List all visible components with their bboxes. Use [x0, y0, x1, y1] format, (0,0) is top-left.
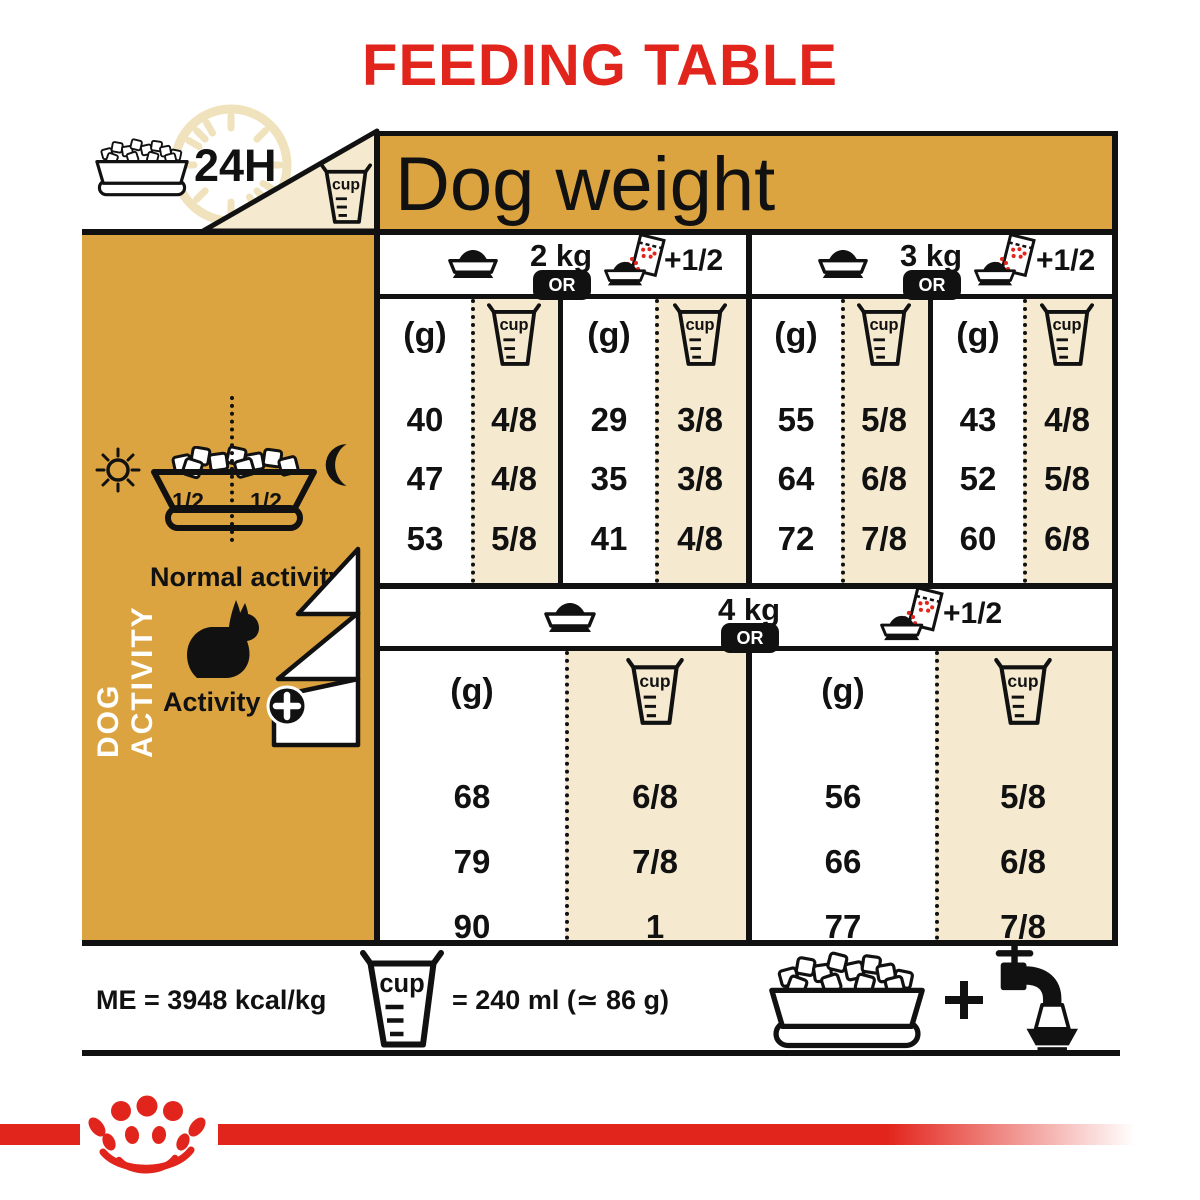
feed-amount: 1 [605, 908, 705, 946]
sun-icon [92, 444, 144, 496]
plus-icon [941, 977, 987, 1023]
cup-icon: cup [994, 658, 1052, 728]
grams-header: (g) [746, 316, 846, 355]
feed-amount: 79 [422, 843, 522, 881]
feed-amount: 5/8 [834, 401, 934, 439]
plus-circle-icon [264, 683, 310, 729]
feed-amount: 90 [422, 908, 522, 946]
mixed-feeding-icon [602, 233, 668, 289]
grams-header: (g) [422, 672, 522, 711]
moon-icon [320, 442, 358, 488]
feed-amount: 4/8 [464, 460, 564, 498]
feeding-table-page: FEEDING TABLE 24H cup Dog weight [0, 0, 1200, 1200]
feed-amount: 40 [375, 401, 475, 439]
feed-amount: 3/8 [650, 401, 750, 439]
feed-amount: 6/8 [605, 778, 705, 816]
feed-amount: 55 [746, 401, 846, 439]
dry-bowl-icon [446, 249, 500, 280]
or-badge: OR [533, 270, 591, 300]
feed-amount: 66 [793, 843, 893, 881]
dry-bowl-icon [542, 602, 598, 634]
feed-amount: 35 [559, 460, 659, 498]
svg-text:cup: cup [1052, 316, 1081, 334]
cup-icon: cup [626, 658, 684, 728]
feed-amount: 64 [746, 460, 846, 498]
feed-amount: 56 [793, 778, 893, 816]
svg-text:cup: cup [685, 316, 714, 334]
dog-weight-title: Dog weight [395, 138, 775, 230]
table-line [82, 940, 1118, 946]
kibble-bowl-icon [88, 136, 196, 200]
table-line [746, 651, 752, 940]
half-label: 1/2 [236, 488, 296, 515]
half-split-line [230, 396, 234, 542]
page-title: FEEDING TABLE [0, 32, 1200, 99]
svg-text:cup: cup [379, 970, 424, 998]
table-line [82, 229, 1118, 235]
svg-text:cup: cup [1007, 671, 1038, 691]
cup-label: cup [332, 176, 360, 193]
feed-amount: 52 [928, 460, 1028, 498]
feed-amount: 41 [559, 520, 659, 558]
feed-amount: 60 [928, 520, 1028, 558]
table-line [82, 1050, 1120, 1056]
cup-equivalence-label: = 240 ml (≃ 86 g) [452, 985, 669, 1016]
svg-text:cup: cup [869, 316, 898, 334]
feed-amount: 7/8 [834, 520, 934, 558]
table-line [377, 131, 1118, 136]
plus-half-label: +1/2 [1036, 244, 1095, 278]
feed-amount: 4/8 [650, 520, 750, 558]
cup-icon: cup [360, 950, 444, 1052]
feed-amount: 77 [793, 908, 893, 946]
table-line [377, 583, 1118, 589]
grams-header: (g) [928, 316, 1028, 355]
cup-icon: cup [487, 303, 541, 369]
mixed-feeding-icon [878, 586, 946, 644]
plus-half-label: +1/2 [664, 244, 723, 278]
feed-amount: 5/8 [973, 778, 1073, 816]
crown-paw-logo [87, 1094, 207, 1194]
grams-header: (g) [375, 316, 475, 355]
brand-stripe [0, 1124, 80, 1145]
feed-amount: 4/8 [464, 401, 564, 439]
feed-amount: 7/8 [605, 843, 705, 881]
feed-amount: 29 [559, 401, 659, 439]
brand-stripe [218, 1124, 1135, 1145]
feed-amount: 6/8 [973, 843, 1073, 881]
activity-label: Activity [163, 687, 261, 718]
feed-amount: 6/8 [834, 460, 934, 498]
feed-amount: 68 [422, 778, 522, 816]
weight-label-3kg: 3 kg [881, 238, 981, 274]
grams-header: (g) [793, 672, 893, 711]
grams-header: (g) [559, 316, 659, 355]
feed-amount: 7/8 [973, 908, 1073, 946]
cup-icon: cup [320, 163, 372, 227]
cup-icon: cup [857, 303, 911, 369]
or-badge: OR [903, 270, 961, 300]
cup-icon: cup [673, 303, 727, 369]
or-badge: OR [721, 623, 779, 653]
plus-half-label: +1/2 [943, 597, 1002, 631]
svg-text:cup: cup [639, 671, 670, 691]
svg-text:cup: cup [499, 316, 528, 334]
feed-amount: 47 [375, 460, 475, 498]
kibble-bowl-icon [757, 948, 937, 1054]
feed-amount: 4/8 [1017, 401, 1117, 439]
feed-amount: 5/8 [1017, 460, 1117, 498]
feed-amount: 6/8 [1017, 520, 1117, 558]
feed-amount: 72 [746, 520, 846, 558]
water-tap-icon [986, 944, 1078, 1051]
cup-icon: cup [1040, 303, 1094, 369]
dry-bowl-icon [816, 249, 870, 280]
feed-amount: 3/8 [650, 460, 750, 498]
half-label: 1/2 [158, 488, 218, 515]
feed-amount: 53 [375, 520, 475, 558]
feed-amount: 5/8 [464, 520, 564, 558]
me-kcal-label: ME = 3948 kcal/kg [96, 985, 326, 1016]
weight-label-2kg: 2 kg [511, 238, 611, 274]
feed-amount: 43 [928, 401, 1028, 439]
mixed-feeding-icon [972, 233, 1038, 289]
